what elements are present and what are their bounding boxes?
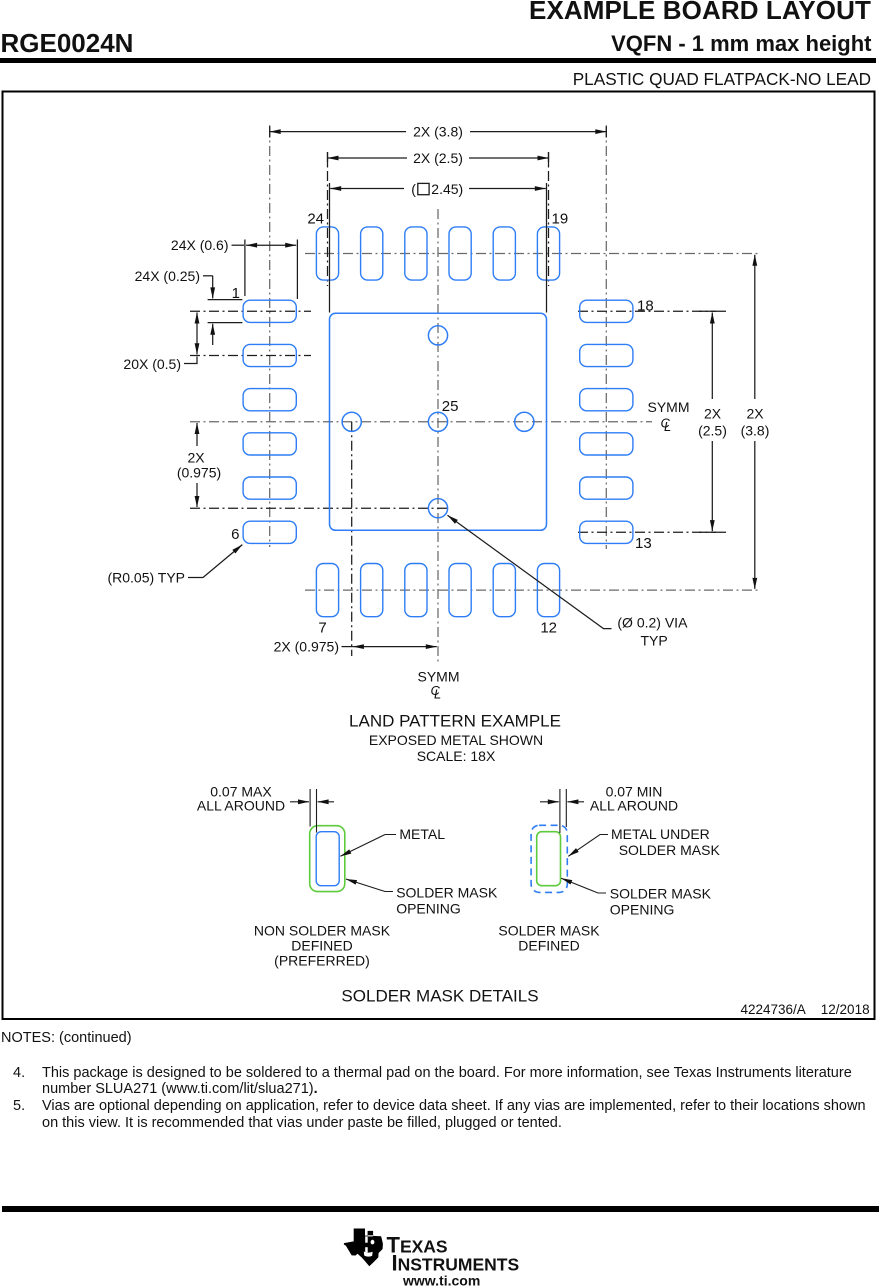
svg-text:(Ø 0.2) VIA: (Ø 0.2) VIA	[617, 614, 688, 630]
svg-text:METAL UNDER: METAL UNDER	[611, 826, 710, 842]
svg-text:(0.975): (0.975)	[177, 464, 221, 480]
svg-text:24X (0.6): 24X (0.6)	[171, 237, 229, 253]
svg-text:SOLDER MASK: SOLDER MASK	[498, 923, 600, 939]
svg-text:TYP: TYP	[641, 632, 668, 648]
svg-text:www.ti.com: www.ti.com	[402, 1272, 480, 1287]
svg-text:LAND PATTERN EXAMPLE: LAND PATTERN EXAMPLE	[349, 712, 561, 731]
svg-text:ALL AROUND: ALL AROUND	[590, 798, 678, 814]
svg-text:(R0.05) TYP: (R0.05) TYP	[107, 570, 185, 586]
svg-text:4224736/A 12/2018: 4224736/A 12/2018	[740, 1002, 869, 1017]
svg-text:DEFINED: DEFINED	[518, 938, 579, 954]
svg-text:24X (0.25): 24X (0.25)	[135, 268, 200, 284]
svg-text:(: (	[411, 181, 416, 197]
svg-text:19: 19	[552, 211, 569, 228]
svg-text:OPENING: OPENING	[396, 901, 461, 917]
svg-text:2X: 2X	[704, 405, 722, 421]
svg-text:2X (3.8): 2X (3.8)	[413, 124, 463, 140]
svg-text:L: L	[434, 687, 441, 702]
svg-text:SOLDER MASK: SOLDER MASK	[610, 886, 712, 902]
svg-text:(3.8): (3.8)	[741, 422, 770, 438]
svg-text:2X (0.975): 2X (0.975)	[274, 639, 339, 655]
svg-text:NON SOLDER MASK: NON SOLDER MASK	[254, 923, 391, 939]
svg-text:20X (0.5): 20X (0.5)	[123, 356, 181, 372]
svg-text:2.45): 2.45)	[431, 181, 463, 197]
svg-text:13: 13	[635, 535, 652, 552]
svg-text:24: 24	[307, 211, 324, 228]
svg-text:1: 1	[232, 285, 240, 302]
svg-text:18: 18	[637, 298, 654, 315]
svg-text:2X: 2X	[187, 449, 205, 465]
svg-text:6: 6	[231, 526, 239, 543]
svg-text:(PREFERRED): (PREFERRED)	[274, 953, 370, 969]
svg-text:SOLDER MASK DETAILS: SOLDER MASK DETAILS	[341, 987, 538, 1006]
svg-text:SCALE: 18X: SCALE: 18X	[417, 748, 496, 764]
svg-text:2X: 2X	[746, 405, 764, 421]
svg-text:25: 25	[442, 398, 459, 415]
svg-text:L: L	[664, 419, 671, 434]
svg-text:SOLDER MASK: SOLDER MASK	[396, 885, 498, 901]
svg-text:SYMM: SYMM	[648, 399, 690, 415]
svg-text:EXPOSED METAL SHOWN: EXPOSED METAL SHOWN	[369, 732, 543, 748]
svg-text:(2.5): (2.5)	[698, 422, 727, 438]
svg-text:METAL: METAL	[399, 826, 445, 842]
svg-text:12: 12	[540, 620, 557, 637]
svg-text:2X (2.5): 2X (2.5)	[413, 150, 463, 166]
svg-text:ALL AROUND: ALL AROUND	[197, 798, 285, 814]
svg-text:7: 7	[318, 620, 326, 637]
svg-text:DEFINED: DEFINED	[291, 938, 352, 954]
svg-text:SOLDER MASK: SOLDER MASK	[619, 842, 721, 858]
svg-text:OPENING: OPENING	[610, 902, 675, 918]
